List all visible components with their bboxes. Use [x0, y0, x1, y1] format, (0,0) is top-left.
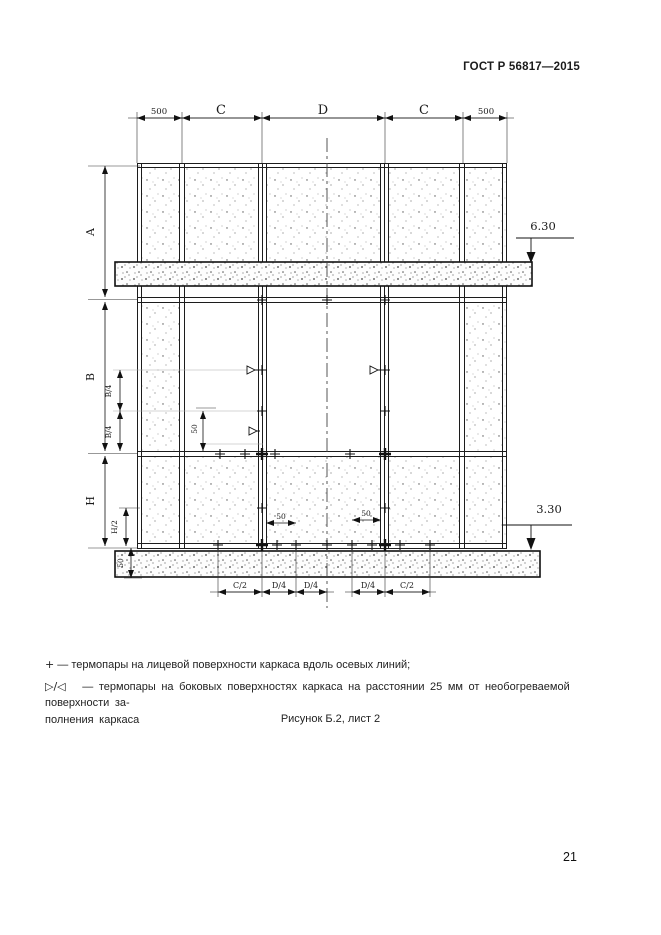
- thermocouple-row-guides: [113, 370, 263, 444]
- dim-h2: H/2: [110, 520, 119, 534]
- legend-item2-text-line1: — термопары на боковых поверхностях карк…: [45, 681, 570, 710]
- dim-inner-50-right: 50: [361, 509, 371, 518]
- dim-top-d: D: [318, 103, 328, 118]
- page-number: 21: [540, 850, 600, 864]
- dim-bottom-d4-1: D/4: [272, 581, 286, 590]
- dim-left-h: H: [84, 496, 97, 506]
- dim-top-c-left: C: [216, 103, 226, 118]
- cross-symbol: +: [45, 658, 54, 671]
- dim-top-500-right: 500: [478, 107, 494, 117]
- frame-infill-panels: [142, 168, 507, 543]
- legend-item1-text: — термопары на лицевой поверхности карка…: [57, 659, 410, 671]
- dim-slab-50: 50: [116, 558, 125, 568]
- level-mark-630: 6.30: [530, 219, 556, 233]
- dim-top-c-right: C: [419, 103, 429, 118]
- dim-bottom-c2-right: C/2: [400, 581, 414, 590]
- dim-top-500-left: 500: [151, 107, 167, 117]
- figure-caption: Рисунок Б.2, лист 2: [0, 713, 661, 725]
- legend-item-face-thermocouples: + — термопары на лицевой поверхности кар…: [45, 657, 619, 674]
- side-flag-symbol: ▷/◁: [45, 680, 66, 693]
- dim-bottom-d4-3: D/4: [361, 581, 375, 590]
- level-mark-330: 3.30: [536, 502, 562, 516]
- dim-b4-upper: B/4: [104, 384, 113, 397]
- dim-inner-50-left: 50: [276, 512, 286, 521]
- thermocouple-side-flags: [247, 366, 381, 435]
- dim-bottom-d4-2: D/4: [304, 581, 318, 590]
- technical-drawing: 500 C D C 500 A B H B/4 B/4 H/2 50 50 50…: [0, 0, 661, 645]
- dim-inner-50-vertical: 50: [190, 424, 199, 434]
- dim-left-a: A: [84, 227, 97, 237]
- dim-b4-lower: B/4: [104, 425, 113, 438]
- dim-left-b: B: [84, 373, 97, 381]
- dim-bottom-c2-left: C/2: [233, 581, 247, 590]
